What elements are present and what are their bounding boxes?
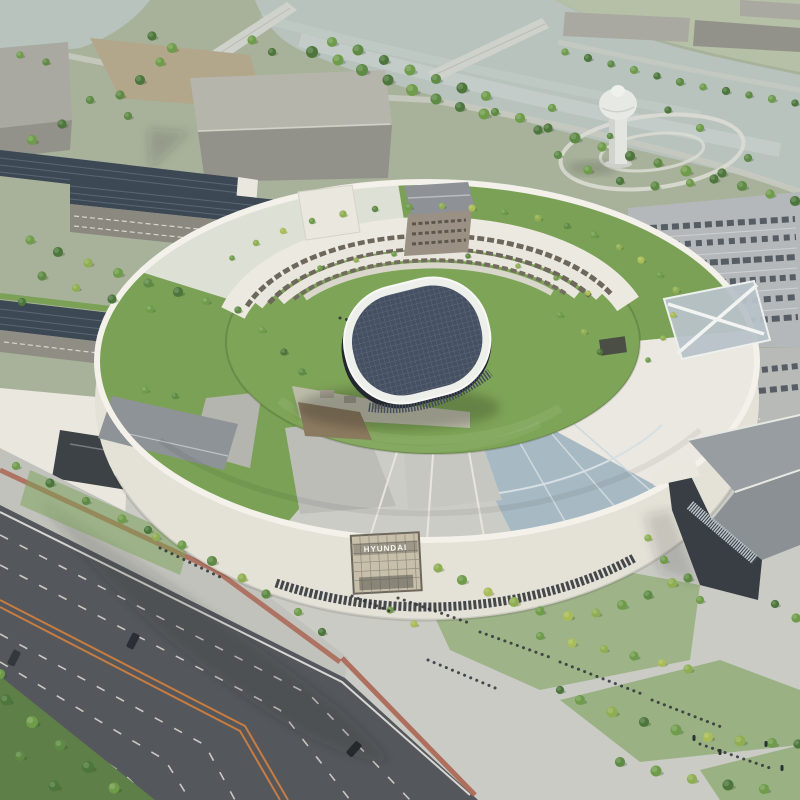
person [765,741,768,747]
ring-connector-block [298,185,360,240]
gate-roof [404,182,476,215]
person [693,735,696,741]
entrance: HYUNDAI [351,532,422,593]
aerial-architectural-rendering: HYUNDAI [0,0,800,800]
warehouse-center [190,70,392,182]
tree [790,196,800,206]
person [719,749,722,755]
gate-building [404,182,476,256]
person [781,765,784,771]
rendering-canvas: HYUNDAI [0,0,800,800]
